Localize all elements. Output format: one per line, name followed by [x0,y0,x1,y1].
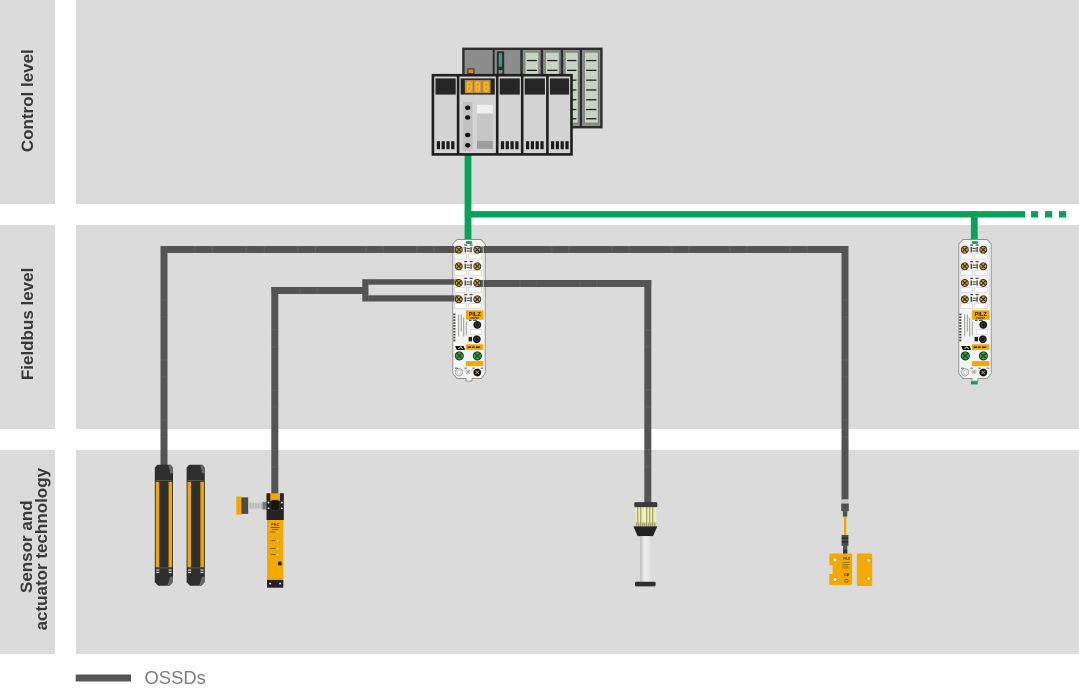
svg-text:CE: CE [844,572,850,577]
svg-text:PILZ: PILZ [843,556,850,560]
svg-text:actuator technology: actuator technology [32,467,51,630]
svg-text:Control level: Control level [18,49,37,152]
svg-text:PILZ: PILZ [271,523,280,527]
svg-text:Fieldbus level: Fieldbus level [18,268,37,380]
svg-text:OSSDs: OSSDs [145,667,206,688]
